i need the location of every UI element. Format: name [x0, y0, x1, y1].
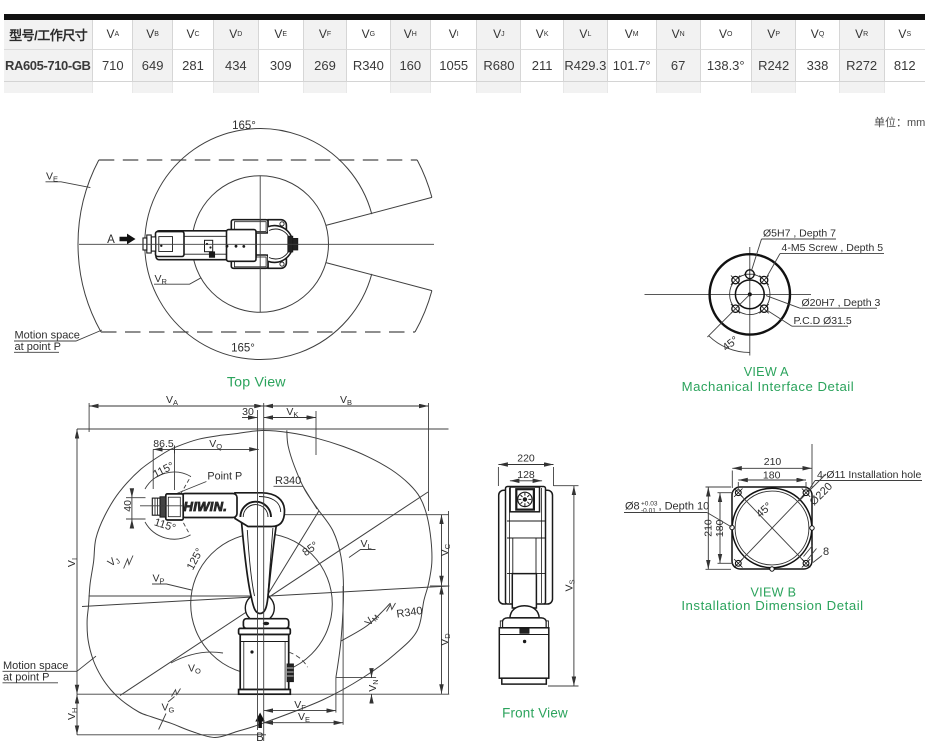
- svg-text:45°: 45°: [754, 500, 774, 520]
- svg-text:Motion space: Motion space: [3, 660, 68, 672]
- svg-text:VA: VA: [166, 394, 178, 407]
- svg-text:VM: VM: [363, 610, 381, 628]
- svg-text:85°: 85°: [300, 539, 321, 558]
- svg-text:30: 30: [242, 406, 254, 418]
- svg-text:VK: VK: [286, 406, 298, 419]
- svg-text:Machanical Interface Detail: Machanical Interface Detail: [682, 379, 855, 394]
- svg-text:115°: 115°: [151, 460, 176, 481]
- svg-text:210: 210: [703, 519, 715, 537]
- svg-text:Point P: Point P: [207, 471, 242, 483]
- svg-text:VF: VF: [294, 699, 306, 712]
- svg-text:VD: VD: [439, 633, 452, 646]
- svg-text:R340: R340: [396, 605, 424, 621]
- svg-text:8: 8: [823, 546, 829, 558]
- svg-text:Ø5H7 , Depth 7: Ø5H7 , Depth 7: [763, 228, 836, 240]
- svg-text:R340: R340: [275, 475, 301, 487]
- svg-text:220: 220: [517, 453, 535, 465]
- svg-text:at point P: at point P: [15, 341, 61, 353]
- svg-text:165°: 165°: [232, 120, 256, 132]
- svg-text:4-Ø11 Installation hole: 4-Ø11 Installation hole: [817, 469, 921, 481]
- svg-text:VQ: VQ: [209, 438, 222, 451]
- svg-text:128: 128: [517, 469, 535, 481]
- svg-text:45°: 45°: [720, 334, 741, 354]
- svg-text:VS: VS: [563, 579, 576, 591]
- svg-text:Motion space: Motion space: [15, 330, 80, 342]
- svg-text:4-M5 Screw , Depth 5: 4-M5 Screw , Depth 5: [782, 242, 884, 254]
- svg-text:VC: VC: [439, 543, 452, 556]
- svg-text:, Depth 10: , Depth 10: [659, 501, 710, 513]
- svg-text:210: 210: [764, 456, 782, 468]
- svg-text:VJ: VJ: [105, 553, 122, 570]
- svg-text:Installation Dimension Detail: Installation Dimension Detail: [681, 598, 863, 613]
- svg-text:180: 180: [714, 519, 726, 537]
- svg-text:VI: VI: [66, 558, 79, 567]
- svg-text:VN: VN: [367, 679, 380, 691]
- svg-text:P.C.D Ø31.5: P.C.D Ø31.5: [794, 315, 852, 327]
- svg-text:HIWIN.: HIWIN.: [184, 499, 228, 514]
- svg-text:VIEW A: VIEW A: [744, 365, 789, 379]
- svg-text:Top View: Top View: [227, 375, 286, 391]
- svg-text:B: B: [256, 732, 264, 743]
- svg-text:VO: VO: [188, 663, 201, 676]
- svg-text:at point P: at point P: [3, 672, 49, 684]
- svg-text:180: 180: [763, 469, 781, 481]
- svg-text:VB: VB: [340, 394, 352, 407]
- svg-text:+0.03: +0.03: [641, 501, 658, 508]
- svg-text:VG: VG: [162, 702, 175, 715]
- svg-text:165°: 165°: [231, 343, 255, 355]
- svg-text:40: 40: [122, 500, 134, 512]
- svg-text:125°: 125°: [185, 546, 206, 572]
- svg-text:Ø20H7 , Depth 3: Ø20H7 , Depth 3: [802, 297, 881, 309]
- svg-text:VH: VH: [66, 708, 79, 720]
- svg-text:86.5: 86.5: [153, 438, 174, 450]
- svg-text:Front View: Front View: [502, 705, 568, 720]
- svg-text:Ø8: Ø8: [625, 501, 640, 513]
- svg-text:VE: VE: [298, 711, 310, 724]
- svg-text:-0.01: -0.01: [641, 508, 656, 515]
